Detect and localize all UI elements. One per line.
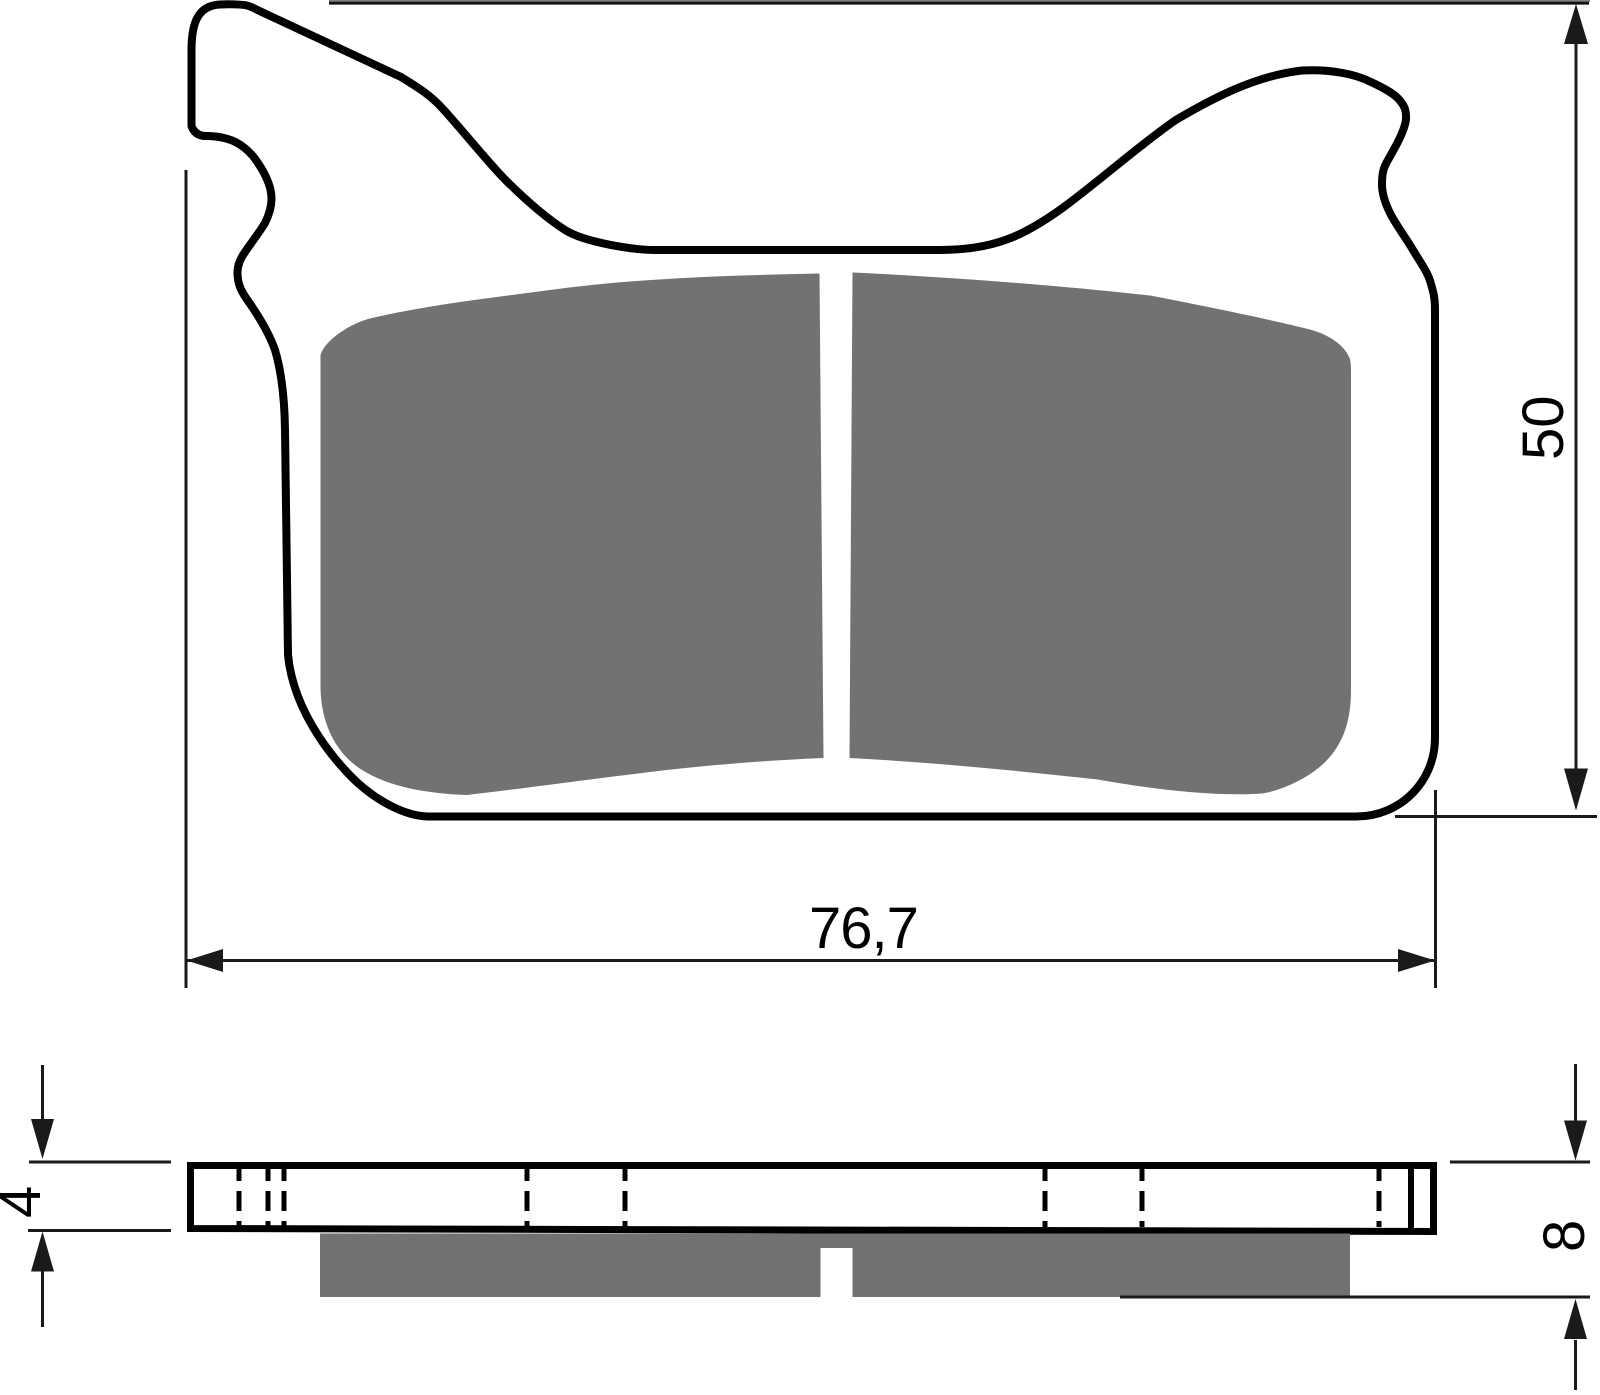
svg-text:50: 50 (1511, 395, 1576, 460)
svg-text:8: 8 (1532, 1220, 1597, 1252)
svg-text:76,7: 76,7 (809, 896, 918, 961)
svg-text:4: 4 (0, 1186, 53, 1218)
